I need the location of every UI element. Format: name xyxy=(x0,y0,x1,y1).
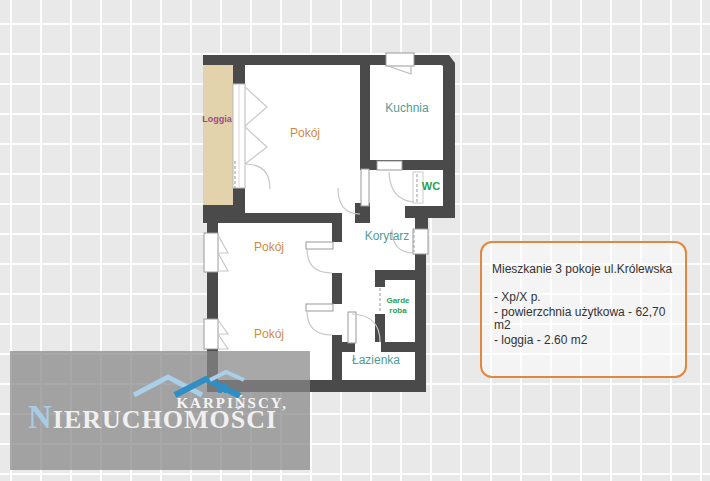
label-garderoba-line1: Garde xyxy=(386,296,410,305)
label-korytarz: Korytarz xyxy=(365,229,410,243)
logo-initial: N xyxy=(28,399,53,435)
logo-line2: NIERUCHOMOŚCI xyxy=(28,404,277,435)
label-garderoba-line2: roba xyxy=(389,306,407,315)
logo-line2-rest: IERUCHOMOŚCI xyxy=(53,405,277,434)
label-loggia: Loggia xyxy=(202,114,232,124)
loggia-area xyxy=(203,65,233,207)
agency-logo: KARPIŃSCY, NIERUCHOMOŚCI xyxy=(10,351,310,470)
listing-loggia-area: - loggia - 2.60 m2 xyxy=(494,334,675,348)
listing-area: - powierzchnia użytkowa - 62,70 m2 xyxy=(494,306,675,333)
listing-title: Mieszkanie 3 pokoje ul.Królewska xyxy=(492,262,675,276)
page: { "background": { "tile_color": "#e9e9e9… xyxy=(0,0,710,481)
listing-floor: - Xp/X p. xyxy=(494,291,675,305)
label-wc: WC xyxy=(422,180,440,192)
label-pokoj-top: Pokój xyxy=(290,126,320,140)
label-lazienka: Łazienka xyxy=(352,353,400,367)
label-pokoj-bottom: Pokój xyxy=(254,327,284,341)
label-pokoj-middle: Pokój xyxy=(254,240,284,254)
listing-info-box: Mieszkanie 3 pokoje ul.Królewska - Xp/X … xyxy=(480,241,687,378)
label-kuchnia: Kuchnia xyxy=(385,101,429,115)
